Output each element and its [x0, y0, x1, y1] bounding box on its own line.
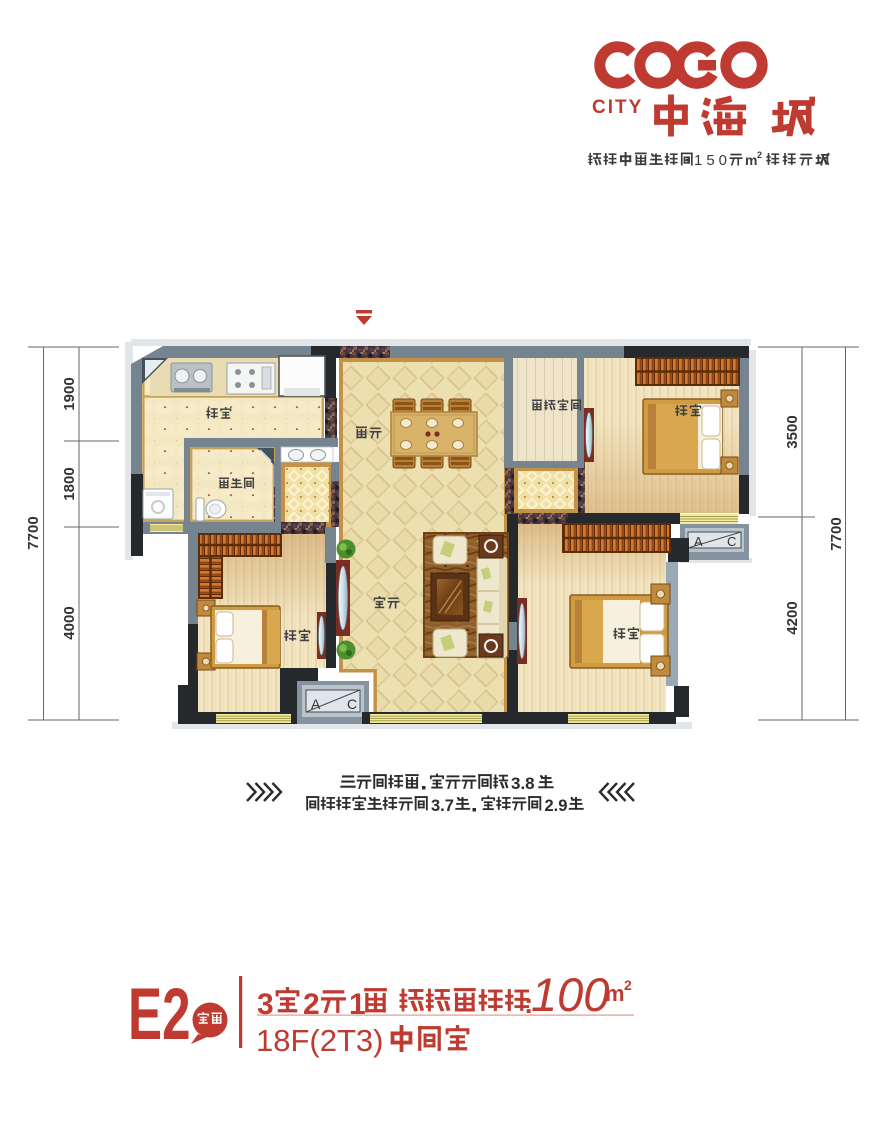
svg-text:18F(2T3): 18F(2T3)	[256, 1023, 383, 1058]
svg-text:2: 2	[757, 150, 762, 160]
svg-text:1800: 1800	[61, 467, 78, 500]
svg-text:4000: 4000	[61, 606, 78, 639]
svg-text:C: C	[727, 534, 736, 549]
svg-text:1900: 1900	[61, 377, 78, 410]
svg-text:7700: 7700	[25, 516, 42, 549]
svg-text:3.7: 3.7	[431, 797, 454, 815]
svg-text:4200: 4200	[784, 601, 801, 634]
svg-text:2: 2	[624, 977, 632, 993]
svg-text:3: 3	[257, 988, 274, 1021]
svg-text:150: 150	[694, 152, 731, 169]
svg-text:A: A	[311, 696, 321, 712]
svg-text:E2: E2	[128, 974, 190, 1055]
svg-text:100: 100	[531, 968, 609, 1021]
svg-text:7700: 7700	[828, 517, 845, 550]
svg-text:CITY: CITY	[592, 97, 643, 118]
svg-text:3500: 3500	[784, 415, 801, 448]
svg-text:2.9: 2.9	[545, 797, 568, 815]
svg-text:2: 2	[303, 988, 320, 1021]
svg-text:1: 1	[349, 988, 366, 1021]
svg-text:3.8: 3.8	[511, 774, 535, 793]
svg-text:m: m	[745, 152, 757, 168]
svg-text:C: C	[347, 696, 357, 712]
svg-text:A: A	[694, 534, 703, 549]
svg-text:m: m	[605, 981, 625, 1006]
